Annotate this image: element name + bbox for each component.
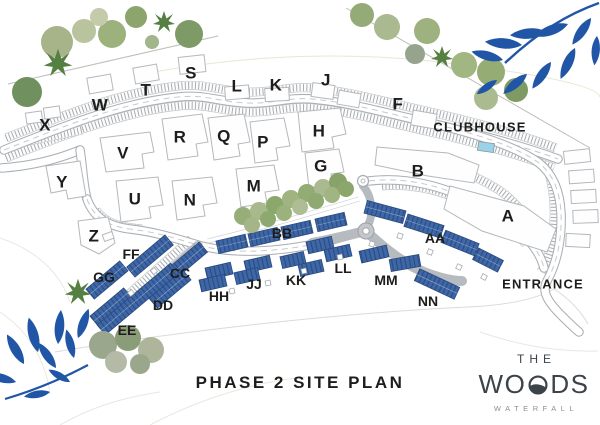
block-label-n: N bbox=[184, 192, 197, 209]
block-label-h: H bbox=[313, 123, 326, 140]
boundary-lines bbox=[8, 8, 590, 352]
block-label-bb: BB bbox=[272, 226, 292, 240]
logo-woods: WODS bbox=[468, 369, 600, 400]
block-label-kk: KK bbox=[286, 273, 306, 287]
block-label-g: G bbox=[314, 158, 328, 175]
logo-tagline: WATERFALL bbox=[472, 404, 600, 413]
block-label-f: F bbox=[393, 96, 404, 113]
block-label-k: K bbox=[270, 77, 283, 94]
clubhouse-label: CLUBHOUSE bbox=[433, 121, 526, 134]
block-label-j: J bbox=[321, 72, 331, 89]
leaf-branch-top-right bbox=[470, 3, 600, 97]
block-label-u: U bbox=[129, 191, 142, 208]
block-label-cc: CC bbox=[170, 266, 190, 280]
block-label-r: R bbox=[174, 129, 187, 146]
block-label-hh: HH bbox=[209, 289, 229, 303]
block-label-t: T bbox=[141, 82, 152, 99]
logo-woods-start: WO bbox=[479, 369, 527, 400]
block-label-b: B bbox=[412, 163, 425, 180]
page-title: PHASE 2 SITE PLAN bbox=[196, 373, 405, 393]
block-label-s: S bbox=[185, 65, 197, 82]
block-label-w: W bbox=[92, 97, 109, 114]
block-label-mm: MM bbox=[374, 273, 397, 287]
site-plan-page: X W T S L K J F V R Q P H G M N U Y Z B … bbox=[0, 0, 600, 425]
block-label-dd: DD bbox=[153, 298, 173, 312]
block-label-m: M bbox=[247, 178, 262, 195]
block-label-q: Q bbox=[217, 128, 231, 145]
logo-the: THE bbox=[473, 352, 600, 366]
block-label-ll: LL bbox=[334, 261, 351, 275]
leaf-branch-bottom-left bbox=[0, 307, 93, 400]
waterfall-o-icon bbox=[527, 374, 549, 396]
block-label-ee: EE bbox=[118, 323, 137, 337]
block-label-v: V bbox=[117, 145, 129, 162]
block-label-ff: FF bbox=[122, 247, 139, 261]
block-label-jj: JJ bbox=[246, 277, 262, 291]
the-woods-logo: THE WODS WATERFALL bbox=[468, 352, 600, 413]
phase2-buildings bbox=[86, 201, 503, 335]
block-label-nn: NN bbox=[418, 294, 438, 308]
block-label-z: Z bbox=[89, 228, 100, 245]
block-label-x: X bbox=[39, 117, 51, 134]
logo-woods-end: DS bbox=[550, 369, 589, 400]
block-label-aa: AA bbox=[425, 231, 445, 245]
block-label-a: A bbox=[502, 208, 515, 225]
block-label-p: P bbox=[257, 134, 269, 151]
block-label-y: Y bbox=[56, 174, 68, 191]
clubhouse-pool bbox=[477, 141, 494, 152]
block-label-gg: GG bbox=[93, 270, 115, 284]
entrance-label: ENTRANCE bbox=[502, 278, 584, 291]
block-label-l: L bbox=[232, 78, 243, 95]
